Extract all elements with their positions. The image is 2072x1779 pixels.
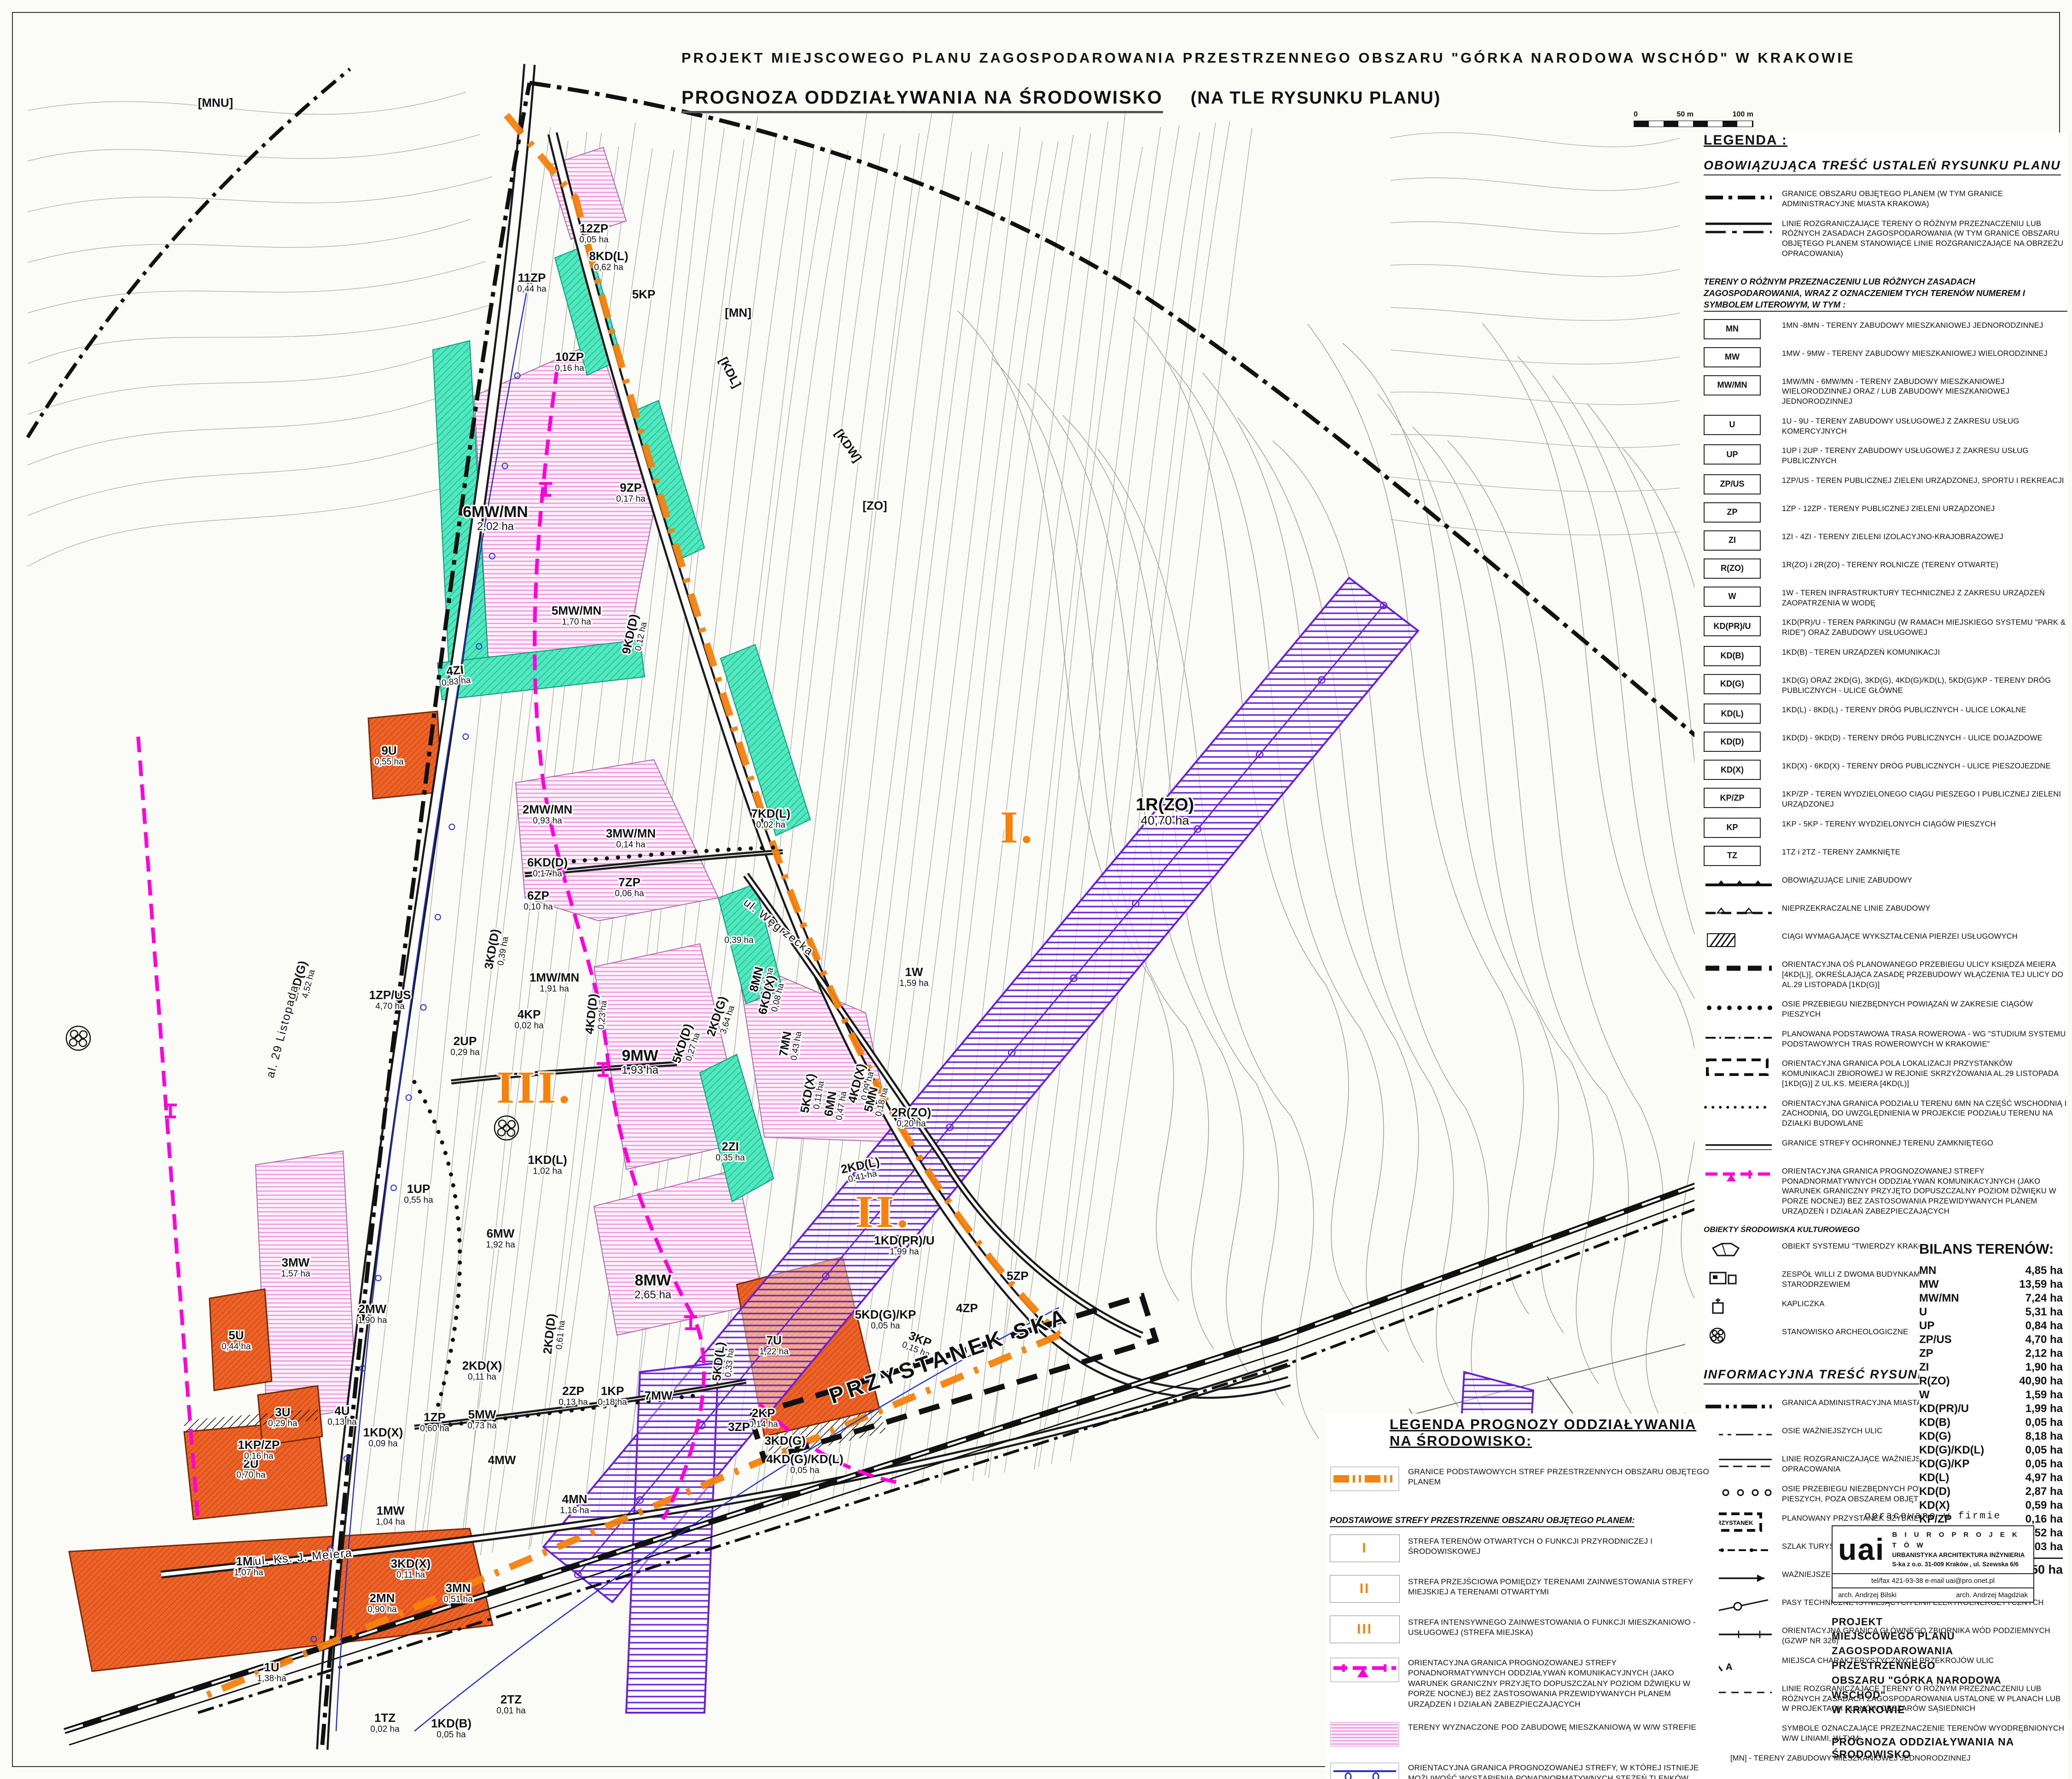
svg-text:2MW: 2MW	[359, 1302, 387, 1316]
scale-bar: 0 50 m 100 m	[1634, 110, 1753, 127]
bilans-code: ZP/US	[1919, 1333, 1952, 1347]
zone-label: 1TZ0,02 ha	[370, 1711, 400, 1734]
legend-section-heading: OBIEKTY ŚRODOWISKA KULTUROWEGO	[1704, 1225, 2067, 1234]
legend-item-text: 1KD(L) - 8KD(L) - TERENY DRÓG PUBLICZNYC…	[1782, 703, 2026, 715]
svg-text:A: A	[1726, 1662, 1732, 1672]
bilans-code: UP	[1919, 1319, 1934, 1333]
svg-text:3ZP: 3ZP	[728, 1420, 750, 1434]
svg-text:40,70 ha: 40,70 ha	[1141, 814, 1189, 827]
svg-text:2,02 ha: 2,02 ha	[477, 520, 514, 533]
zone-label: 6ZP0,10 ha	[524, 889, 553, 912]
legend-item-symbol	[1330, 1656, 1400, 1686]
svg-text:5MW/MN: 5MW/MN	[552, 604, 601, 617]
zone-label: [MNU]	[198, 96, 233, 110]
svg-text:1KD(B): 1KD(B)	[431, 1716, 471, 1730]
svg-text:0,05 ha: 0,05 ha	[871, 1321, 900, 1331]
svg-text:3KD(X): 3KD(X)	[391, 1557, 431, 1570]
bilans-area: 0,84 ha	[2025, 1319, 2063, 1333]
svg-text:0,11 ha: 0,11 ha	[468, 1372, 496, 1382]
legend-symbol	[1704, 930, 1774, 950]
zone-label: 2ZP0,13 ha	[559, 1384, 588, 1407]
zone-label: 4KD(G)/KD(L)0,05 ha	[766, 1452, 844, 1475]
zone-label: 2TZ0,01 ha	[496, 1692, 526, 1715]
svg-text:7U: 7U	[766, 1333, 781, 1347]
legend-item-symbol: U	[1704, 415, 1774, 435]
legend-item-symbol	[1704, 187, 1774, 208]
legend-item-symbol	[1704, 930, 1774, 950]
legend-item: GRANICE STREFY OCHRONNEJ TERENU ZAMKNIĘT…	[1704, 1137, 2067, 1157]
legend-item-text: PLANOWANA PODSTAWOWA TRASA ROWEROWA - WG…	[1782, 1028, 2067, 1050]
legend-item-symbol: KD(L)	[1704, 703, 1774, 724]
legend-item-symbol	[1704, 1326, 1774, 1346]
legend-item-text: OBOWIĄZUJĄCE LINIE ZABUDOWY	[1782, 874, 1912, 886]
zone-label: 5KP	[632, 287, 656, 301]
zone-label: 2MW1,90 ha	[358, 1302, 387, 1325]
legend-prognoza-items: GRANICE PODSTAWOWYCH STREF PRZESTRZENNYC…	[1330, 1465, 1714, 1779]
page-subtitle-note: (NA TLE RYSUNKU PLANU)	[1191, 88, 1441, 108]
zone-label: 2KP0,14 ha	[749, 1406, 778, 1429]
legend-prognoza-heading: LEGENDA PROGNOZY ODDZIAŁYWANIA NA ŚRODOW…	[1390, 1416, 1714, 1449]
bilans-row: MW/MN7,24 ha	[1919, 1291, 2063, 1305]
svg-text:1,04 ha: 1,04 ha	[376, 1517, 405, 1527]
svg-text:4ZI: 4ZI	[446, 663, 465, 678]
legend-item: W1W - TEREN INFRASTRUKTURY TECHNICZNEJ Z…	[1704, 587, 2067, 609]
zone-symbol-box: ZI	[1704, 530, 1761, 551]
svg-text:3KD(G): 3KD(G)	[764, 1434, 806, 1448]
legend-item-text: ORIENTACYJNA GRANICA POLA LOKALIZACJI PR…	[1782, 1057, 2067, 1089]
legend-symbol	[1704, 1165, 1774, 1185]
bilans-code: KD(G)/KD(L)	[1919, 1443, 1984, 1457]
zone-label: 4KP0,02 ha	[514, 1007, 544, 1030]
svg-text:7ZP: 7ZP	[618, 875, 640, 889]
legend-item: KD(D)1KD(D) - 9KD(D) - TERENY DRÓG PUBLI…	[1704, 732, 2067, 752]
svg-text:2,65 ha: 2,65 ha	[634, 1289, 672, 1301]
svg-text:6KD(D): 6KD(D)	[527, 855, 568, 869]
svg-text:[MNU]: [MNU]	[198, 96, 233, 110]
zone-symbol-box: KP/ZP	[1704, 788, 1761, 808]
svg-text:1,92 ha: 1,92 ha	[486, 1240, 515, 1250]
legend-item-symbol: R(ZO)	[1704, 558, 1774, 579]
zone-label: 4ZP	[956, 1301, 978, 1315]
svg-text:1,70 ha: 1,70 ha	[562, 617, 591, 627]
legend-symbol	[1704, 187, 1774, 208]
svg-text:0,70 ha: 0,70 ha	[236, 1470, 266, 1480]
legend-item-text: GRANICE OBSZARU OBJĘTEGO PLANEM (W TYM G…	[1782, 187, 2067, 209]
legend-symbol	[1704, 998, 1774, 1018]
svg-text:1,91 ha: 1,91 ha	[540, 984, 569, 994]
legend-plan-subheading: OBOWIĄZUJĄCA TREŚĆ USTALEŃ RYSUNKU PLANU	[1704, 158, 2061, 175]
legend-item: KP/ZP1KP/ZP - TEREN WYDZIELONEGO CIĄGU P…	[1704, 788, 2067, 810]
legend-item: LINIE ROZGRANICZAJĄCE TERENY O RÓŻNYM PR…	[1704, 217, 2067, 259]
zone-symbol-box: KD(L)	[1704, 703, 1761, 724]
project-title-line: ZAGOSPODAROWANIA PRZESTRZENNEGO	[1832, 1644, 2034, 1673]
legend-item: TZ1TZ i 2TZ - TERENY ZAMKNIĘTE	[1704, 846, 2067, 866]
legend-info-heading: INFORMACYJNA TREŚĆ RYSUNKU	[1704, 1367, 1938, 1384]
firm-name: B I U R O P R O J E K T Ó W	[1892, 1530, 2028, 1551]
legend-item-symbol: ZP/US	[1704, 474, 1774, 494]
legend-item-text: 1KD(G) ORAZ 2KD(G), 3KD(G), 4KD(G)/KD(L)…	[1782, 674, 2067, 696]
legend-prognoza-panel: LEGENDA PROGNOZY ODDZIAŁYWANIA NA ŚRODOW…	[1325, 1413, 1719, 1779]
bilans-row: W1,59 ha	[1919, 1388, 2063, 1402]
legend-item-symbol	[1704, 1297, 1774, 1318]
zone-symbol-box: KD(B)	[1704, 646, 1761, 666]
legend-item-text: GRANICE STREFY OCHRONNEJ TERENU ZAMKNIĘT…	[1782, 1137, 1993, 1149]
legend-item-text: 1KP - 5KP - TERENY WYDZIELONYCH CIĄGÓW P…	[1782, 818, 1996, 830]
legend-item-symbol: UP	[1704, 444, 1774, 465]
legend-item-symbol	[1704, 217, 1774, 238]
bilans-code: KD(G)/KP	[1919, 1457, 1969, 1471]
svg-text:2ZP: 2ZP	[562, 1384, 584, 1398]
svg-text:[KDL]: [KDL]	[716, 355, 744, 390]
zone-label: 9MW1,93 ha	[622, 1047, 659, 1076]
strefa-roman-symbol: II	[1330, 1575, 1400, 1603]
legend-item: ORIENTACYJNA GRANICA POLA LOKALIZACJI PR…	[1704, 1057, 2067, 1089]
zone-label: 1R(ZO)40,70 ha	[1136, 795, 1194, 827]
legend-item: KD(PR)/U1KD(PR)/U - TEREN PARKINGU (W RA…	[1704, 616, 2067, 638]
bilans-row: U5,31 ha	[1919, 1305, 2063, 1319]
legend-item-text: 1MW/MN - 6MW/MN - TERENY ZABUDOWY MIESZK…	[1782, 375, 2067, 407]
project-title-line: MIEJSCOWEGO PLANU	[1832, 1629, 2034, 1644]
legend-item-text: ORIENTACYJNA GRANICA PROGNOZOWANEJ STREF…	[1408, 1761, 1714, 1779]
legend-item-text: ORIENTACYJNA GRANICA PROGNOZOWANEJ STREF…	[1782, 1165, 2067, 1217]
bilans-code: KD(X)	[1919, 1499, 1950, 1512]
zone-label: 2KD(X)0,11 ha	[462, 1359, 502, 1382]
bilans-area: 13,59 ha	[2019, 1278, 2063, 1291]
zone-label: 3MW1,57 ha	[281, 1256, 310, 1279]
legend-item-text: 1UP i 2UP - TERENY ZABUDOWY USŁUGOWEJ Z …	[1782, 444, 2067, 466]
bilans-code: U	[1919, 1305, 1927, 1319]
svg-text:0,93 ha: 0,93 ha	[533, 816, 562, 826]
scale-tick-100: 100 m	[1733, 110, 1753, 119]
svg-text:1,16 ha: 1,16 ha	[560, 1506, 589, 1515]
legend-item: PLANOWANA PODSTAWOWA TRASA ROWEROWA - WG…	[1704, 1028, 2067, 1050]
svg-text:0,16 ha: 0,16 ha	[555, 363, 584, 373]
legend-item-symbol: KD(G)	[1704, 674, 1774, 694]
legend-item-text: ORIENTACYJNA GRANICA PODZIAŁU TERENU 6MN…	[1782, 1097, 2067, 1129]
svg-text:1MW: 1MW	[377, 1504, 405, 1517]
legend-item-symbol	[1704, 1137, 1774, 1157]
svg-text:8MW: 8MW	[634, 1272, 671, 1289]
bilans-code: MN	[1919, 1264, 1936, 1278]
firm-prepared-note: opracowano w firmie	[1832, 1511, 2034, 1522]
legend-symbol	[1704, 1137, 1774, 1157]
legend-item: IISTREFA PRZEJŚCIOWA POMIĘDZY TERENAMI Z…	[1330, 1575, 1714, 1605]
zone-label: 1W1,59 ha	[899, 965, 929, 988]
svg-text:7MW: 7MW	[645, 1389, 673, 1402]
zone-symbol-box: KD(X)	[1704, 760, 1761, 780]
legend-item: ISTREFA TERENÓW OTWARTYCH O FUNKCJI PRZY…	[1330, 1535, 1714, 1564]
zone-label: 0,39 ha	[724, 936, 754, 945]
zone-label: [KDW]	[832, 427, 864, 465]
svg-text:1,02 ha: 1,02 ha	[533, 1166, 562, 1176]
zone-label: [ZO]	[862, 499, 887, 512]
legend-item-text: KAPLICZKA	[1782, 1297, 1825, 1309]
legend-symbol	[1704, 902, 1774, 922]
zone-symbol-box: KD(D)	[1704, 732, 1761, 752]
legend-item-text: OSIE PRZEBIEGU NIEZBĘDNYCH POWIĄZAŃ W ZA…	[1782, 998, 2067, 1020]
svg-text:0,17 ha: 0,17 ha	[616, 494, 646, 504]
svg-text:5ZP: 5ZP	[1007, 1269, 1029, 1283]
svg-text:1,22 ha: 1,22 ha	[759, 1347, 789, 1356]
bilans-area: 0,05 ha	[2025, 1443, 2063, 1457]
bilans-area: 2,87 ha	[2025, 1485, 2063, 1499]
legend-item: R(ZO)1R(ZO) i 2R(ZO) - TERENY ROLNICZE (…	[1704, 558, 2067, 579]
legend-item-symbol: I	[1330, 1535, 1400, 1564]
zone-label: 1KD(B)0,05 ha	[431, 1716, 471, 1739]
legend-symbol	[1330, 1465, 1400, 1493]
zone-label: 2KD(D)0,61 ha	[541, 1313, 568, 1356]
project-title-line: OBSZARU "GÓRKA NARODOWA WSCHÓD"	[1832, 1673, 2034, 1703]
svg-text:1U: 1U	[264, 1660, 279, 1674]
legend-symbol	[1330, 1656, 1400, 1684]
strefa-roman-numeral: II.	[856, 1186, 911, 1237]
zone-symbol-box: W	[1704, 587, 1761, 607]
project-title-lines: PROJEKTMIEJSCOWEGO PLANUZAGOSPODAROWANIA…	[1832, 1615, 2034, 1717]
svg-text:[ZO]: [ZO]	[862, 499, 887, 512]
legend-item-symbol: ZP	[1704, 502, 1774, 523]
legend-item-symbol: III	[1330, 1616, 1400, 1645]
legend-item-text: 1MN -8MN - TERENY ZABUDOWY MIESZKANIOWEJ…	[1782, 319, 2043, 331]
bilans-area: 8,18 ha	[2025, 1430, 2063, 1443]
legend-item-symbol	[1704, 874, 1774, 894]
bilans-row: KD(X)0,59 ha	[1919, 1499, 2063, 1512]
zone-label: 1MW/MN1,91 ha	[530, 971, 579, 994]
svg-text:1KD(X): 1KD(X)	[363, 1425, 403, 1439]
zone-symbol-box: MW	[1704, 347, 1761, 367]
legend-item-symbol	[1330, 1721, 1400, 1750]
svg-text:1,57 ha: 1,57 ha	[281, 1269, 310, 1279]
legend-item-text: 1ZI - 4ZI - TERENY ZIELENI IZOLACYJNO-KR…	[1782, 530, 2003, 542]
svg-text:0,73 ha: 0,73 ha	[467, 1421, 497, 1430]
legend-item: UP1UP i 2UP - TERENY ZABUDOWY USŁUGOWEJ …	[1704, 444, 2067, 466]
legend-item-symbol: MN	[1704, 319, 1774, 339]
legend-item-symbol	[1704, 902, 1774, 922]
bilans-row: MW13,59 ha	[1919, 1278, 2063, 1291]
zone-symbol-box: MW/MN	[1704, 375, 1761, 395]
legend-item: MW/MN1MW/MN - 6MW/MN - TERENY ZABUDOWY M…	[1704, 375, 2067, 407]
legend-symbol	[1704, 1028, 1774, 1048]
bilans-code: KD(PR)/U	[1919, 1402, 1969, 1416]
svg-text:11ZP: 11ZP	[518, 271, 546, 285]
legend-item-symbol	[1704, 1028, 1774, 1048]
svg-text:3MN: 3MN	[446, 1581, 471, 1595]
svg-text:1W: 1W	[905, 965, 923, 979]
zone-label: 1KP0,18 ha	[598, 1384, 627, 1407]
svg-text:1R(ZO): 1R(ZO)	[1136, 795, 1194, 814]
bilans-row: ZP/US4,70 ha	[1919, 1333, 2063, 1347]
legend-item: KD(G)1KD(G) ORAZ 2KD(G), 3KD(G), 4KD(G)/…	[1704, 674, 2067, 696]
legend-symbol	[1704, 958, 1774, 978]
svg-text:0,55 ha: 0,55 ha	[404, 1195, 433, 1205]
zone-label: 7MW	[645, 1389, 673, 1402]
legend-item: ZI1ZI - 4ZI - TERENY ZIELENI IZOLACYJNO-…	[1704, 530, 2067, 551]
svg-text:0,35 ha: 0,35 ha	[716, 1153, 745, 1163]
legend-item: CIĄGI WYMAGAJĄCE WYKSZTAŁCENIA PIERZEI U…	[1704, 930, 2067, 950]
legend-item-text: STANOWISKO ARCHEOLOGICZNE	[1782, 1326, 1908, 1337]
svg-text:12ZP: 12ZP	[580, 221, 608, 235]
svg-text:0,01 ha: 0,01 ha	[496, 1706, 526, 1715]
svg-text:[KDW]: [KDW]	[832, 427, 864, 465]
bilans-area: 5,31 ha	[2025, 1305, 2063, 1319]
svg-text:9MW: 9MW	[622, 1047, 658, 1064]
legend-item-text: LINIE ROZGRANICZAJĄCE TERENY O RÓŻNYM PR…	[1782, 217, 2067, 259]
legend-item: ORIENTACYJNA GRANICA PROGNOZOWANEJ STREF…	[1704, 1165, 2067, 1217]
legend-item-text: 1KD(X) - 6KD(X) - TERENY DRÓG PUBLICZNYC…	[1782, 760, 2051, 772]
svg-text:0,55 ha: 0,55 ha	[374, 757, 404, 767]
svg-text:2R(ZO): 2R(ZO)	[891, 1105, 931, 1119]
zone-label: 3MN0,51 ha	[443, 1581, 473, 1604]
firm-arch-right: arch. Andrzej Magdziak	[1956, 1591, 2028, 1599]
svg-text:al. 29 Listopada: al. 29 Listopada	[264, 983, 301, 1080]
svg-text:2ZI: 2ZI	[722, 1139, 739, 1153]
firm-address: S-ka z o.o. 31-009 Kraków , ul. Szewska …	[1892, 1560, 2028, 1569]
svg-text:0,02 ha: 0,02 ha	[756, 820, 786, 830]
legend-item-symbol	[1704, 1268, 1774, 1288]
legend-item-text: ORIENTACYJNA OŚ PLANOWANEGO PRZEBIEGU UL…	[1782, 958, 2067, 990]
zone-label: 4MN1,16 ha	[560, 1492, 589, 1515]
legend-item-text: 1R(ZO) i 2R(ZO) - TERENY ROLNICZE (TEREN…	[1782, 558, 1998, 570]
firm-contact: tel/fax 421-93-38 e-mail uai@pro.onet.pl	[1833, 1574, 2033, 1588]
zone-symbol-box: UP	[1704, 444, 1761, 465]
legend-item-symbol	[1704, 1057, 1774, 1077]
zone-label: 3KD(G)	[764, 1434, 806, 1448]
svg-text:6ZP: 6ZP	[527, 889, 549, 902]
zone-label: 1MW1,04 ha	[376, 1504, 405, 1527]
legend-item-symbol: MW	[1704, 347, 1774, 367]
legend-item: ORIENTACYJNA OŚ PLANOWANEGO PRZEBIEGU UL…	[1704, 958, 2067, 990]
legend-item-text: 1MW - 9MW - TERENY ZABUDOWY MIESZKANIOWE…	[1782, 347, 2048, 359]
legend-symbol	[1704, 1268, 1774, 1288]
bilans-area: 40,90 ha	[2019, 1374, 2063, 1388]
legend-item: MW1MW - 9MW - TERENY ZABUDOWY MIESZKANIO…	[1704, 347, 2067, 367]
zone-label: 7KD(L)0,02 ha	[751, 807, 790, 830]
zone-symbol-box: MN	[1704, 319, 1761, 339]
title-block: PROJEKT MIEJSCOWEGO PLANU ZAGOSPODAROWAN…	[681, 50, 1740, 113]
bilans-code: KD(G)	[1919, 1430, 1951, 1443]
legend-item-text: TERENY WYZNACZONE POD ZABUDOWĘ MIESZKANI…	[1408, 1721, 1696, 1732]
svg-text:4U: 4U	[334, 1404, 349, 1418]
zone-symbol-box: U	[1704, 415, 1761, 435]
scale-bar-graphic	[1634, 121, 1753, 127]
legend-item: GRANICE PODSTAWOWYCH STREF PRZESTRZENNYC…	[1330, 1465, 1714, 1494]
bilans-row: ZI1,90 ha	[1919, 1360, 2063, 1374]
legend-item-symbol: TZ	[1704, 846, 1774, 866]
strefa-roman-numeral: I.	[1000, 802, 1035, 853]
legend-item-symbol: KD(B)	[1704, 646, 1774, 666]
svg-text:4,70 ha: 4,70 ha	[375, 1001, 405, 1011]
zone-symbol-box: KP	[1704, 818, 1761, 838]
zone-label: [MN]	[725, 306, 751, 320]
legend-item-symbol	[1704, 998, 1774, 1018]
legend-item: ORIENTACYJNA GRANICA PROGNOZOWANEJ STREF…	[1330, 1656, 1714, 1709]
svg-text:9U: 9U	[381, 744, 396, 757]
zone-label: 5KD(G)/KP0,05 ha	[855, 1308, 916, 1331]
zone-symbol-box: R(ZO)	[1704, 558, 1761, 579]
legend-item-text: 1ZP - 12ZP - TERENY PUBLICZNEJ ZIELENI U…	[1782, 502, 1995, 514]
legend-symbol	[1704, 1240, 1774, 1260]
zone-label: 2R(ZO)0,20 ha	[891, 1105, 931, 1128]
bilans-row: KD(L)4,97 ha	[1919, 1471, 2063, 1485]
legend-item-symbol: MW/MN	[1704, 375, 1774, 395]
svg-text:0,05 ha: 0,05 ha	[579, 235, 609, 244]
bilans-area: 2,12 ha	[2025, 1347, 2063, 1360]
firm-panel: opracowano w firmie uai B I U R O P R O …	[1832, 1511, 2034, 1779]
legend-item-text: 1TZ i 2TZ - TERENY ZAMKNIĘTE	[1782, 846, 1900, 858]
svg-text:5KP: 5KP	[632, 287, 656, 301]
zone-label: 1KD(L)1,02 ha	[528, 1153, 567, 1176]
bilans-row: KD(PR)/U1,99 ha	[1919, 1402, 2063, 1416]
bilans-code: ZI	[1919, 1360, 1929, 1374]
zone-label: 8MW2,65 ha	[634, 1272, 672, 1301]
svg-text:10ZP: 10ZP	[555, 350, 584, 364]
bilans-code: W	[1919, 1388, 1930, 1402]
svg-text:1,93 ha: 1,93 ha	[622, 1064, 659, 1076]
zone-label: 7ZP0,06 ha	[615, 875, 644, 898]
legend-section-heading: PODSTAWOWE STREFY PRZESTRZENNE OBSZARU O…	[1330, 1515, 1635, 1527]
legend-item-symbol: KP	[1704, 818, 1774, 838]
legend-item-symbol: KD(X)	[1704, 760, 1774, 780]
scale-tick-0: 0	[1634, 110, 1638, 119]
svg-text:2MN: 2MN	[370, 1591, 395, 1605]
legend-item: ORIENTACYJNA GRANICA PROGNOZOWANEJ STREF…	[1330, 1761, 1714, 1779]
strefa-roman-symbol: I	[1330, 1535, 1400, 1562]
zone-symbol-box: ZP/US	[1704, 474, 1761, 494]
legend-item: KD(B)1KD(B) - TEREN URZĄDZEŃ KOMUNIKACJI	[1704, 646, 2067, 666]
page-subtitle: PROGNOZA ODDZIAŁYWANIA NA ŚRODOWISKO	[681, 87, 1163, 113]
zone-symbol-box: KD(G)	[1704, 674, 1761, 694]
svg-text:0,62 ha: 0,62 ha	[594, 262, 623, 272]
bilans-row: KD(G)/KD(L)0,05 ha	[1919, 1443, 2063, 1457]
bilans-row: R(ZO)40,90 ha	[1919, 1374, 2063, 1388]
zone-label: 9ZP0,17 ha	[616, 481, 646, 504]
scale-tick-50: 50 m	[1677, 110, 1694, 119]
zone-label: 1KD(X)0,09 ha	[363, 1425, 403, 1448]
legend-item-symbol: W	[1704, 587, 1774, 607]
svg-text:0,44 ha: 0,44 ha	[221, 1342, 251, 1351]
legend-item: KD(X)1KD(X) - 6KD(X) - TERENY DRÓG PUBLI…	[1704, 760, 2067, 780]
svg-text:0,60 ha: 0,60 ha	[420, 1424, 449, 1433]
svg-text:4KD(G)/KD(L): 4KD(G)/KD(L)	[766, 1452, 844, 1466]
bilans-row: ZP2,12 ha	[1919, 1347, 2063, 1360]
svg-text:4MN: 4MN	[562, 1492, 588, 1506]
bilans-row: KD(D)2,87 ha	[1919, 1485, 2063, 1499]
svg-text:0,51 ha: 0,51 ha	[443, 1594, 473, 1604]
zone-label: 6MW1,92 ha	[486, 1227, 515, 1250]
svg-text:1MW/MN: 1MW/MN	[530, 971, 579, 984]
zone-label: 4MW	[488, 1453, 516, 1467]
bilans-heading: BILANS TERENÓW:	[1919, 1241, 2063, 1257]
svg-text:9ZP: 9ZP	[620, 481, 642, 494]
legend-item-text: STREFA PRZEJŚCIOWA POMIĘDZY TERENAMI ZAI…	[1408, 1575, 1714, 1598]
legend-item: KD(L)1KD(L) - 8KD(L) - TERENY DRÓG PUBLI…	[1704, 703, 2067, 724]
zone-label: 2MN0,90 ha	[367, 1591, 397, 1614]
legend-symbol	[1704, 1057, 1774, 1077]
legend-item-text: 1KP/ZP - TEREN WYDZIELONEGO CIĄGU PIESZE…	[1782, 788, 2067, 810]
svg-text:2MW/MN: 2MW/MN	[523, 802, 572, 816]
bilans-row: KD(B)0,05 ha	[1919, 1416, 2063, 1430]
legend-item: MN1MN -8MN - TERENY ZABUDOWY MIESZKANIOW…	[1704, 319, 2067, 339]
bilans-row: KD(G)8,18 ha	[1919, 1430, 2063, 1443]
bilans-code: MW/MN	[1919, 1291, 1959, 1305]
zone-label: [KDL]	[716, 355, 744, 390]
legend-item: ORIENTACYJNA GRANICA PODZIAŁU TERENU 6MN…	[1704, 1097, 2067, 1129]
svg-text:0,29 ha: 0,29 ha	[268, 1419, 297, 1428]
zone-label: 3ZP	[728, 1420, 750, 1434]
legend-item: U1U - 9U - TERENY ZABUDOWY USŁUGOWEJ Z Z…	[1704, 415, 2067, 437]
legend-item-symbol	[1330, 1465, 1400, 1494]
legend-item-symbol: KD(PR)/U	[1704, 616, 1774, 636]
svg-text:1,07 ha: 1,07 ha	[234, 1568, 263, 1577]
